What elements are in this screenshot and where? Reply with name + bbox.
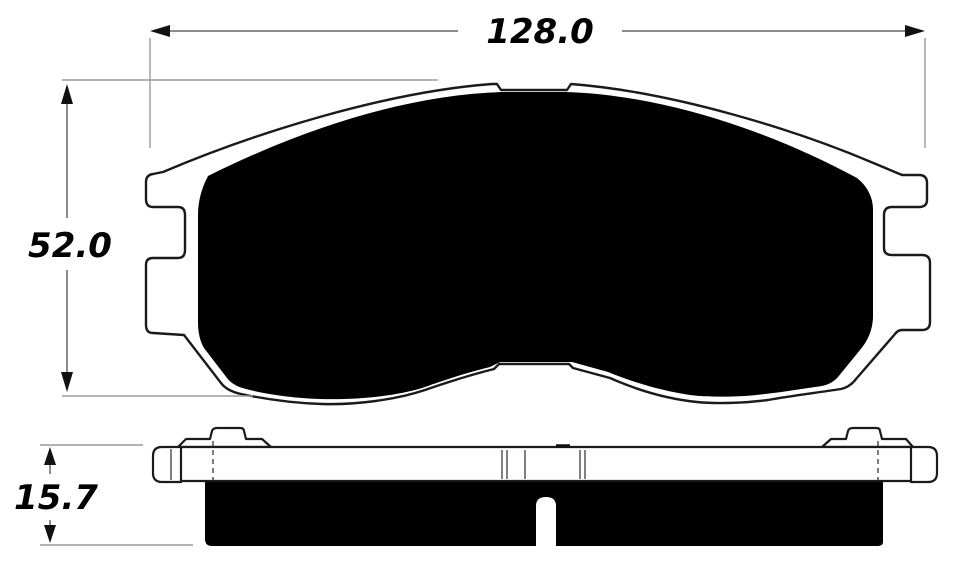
brake-pad-drawing: 128.0 52.0 15.7 — [0, 0, 970, 570]
right-clip — [822, 428, 913, 447]
width-arrow-left — [150, 25, 170, 37]
thickness-arrow-top — [44, 447, 56, 465]
height-arrow-bottom — [61, 372, 73, 392]
side-view-center-slot — [536, 497, 556, 548]
width-dimension-label: 128.0 — [486, 12, 594, 52]
width-arrow-right — [905, 25, 925, 37]
side-view-left-end-cap — [153, 447, 181, 482]
technical-drawing-canvas: 128.0 52.0 15.7 — [0, 0, 970, 570]
height-arrow-top — [61, 84, 73, 104]
side-view — [153, 428, 937, 548]
height-dimension-label: 52.0 — [28, 226, 112, 266]
thickness-arrow-bottom — [44, 525, 56, 543]
side-view-right-end-cap — [911, 447, 937, 482]
left-clip — [178, 428, 271, 447]
thickness-dimension-label: 15.7 — [14, 478, 98, 518]
front-view — [146, 84, 930, 404]
side-view-backplate-bar — [180, 447, 912, 481]
